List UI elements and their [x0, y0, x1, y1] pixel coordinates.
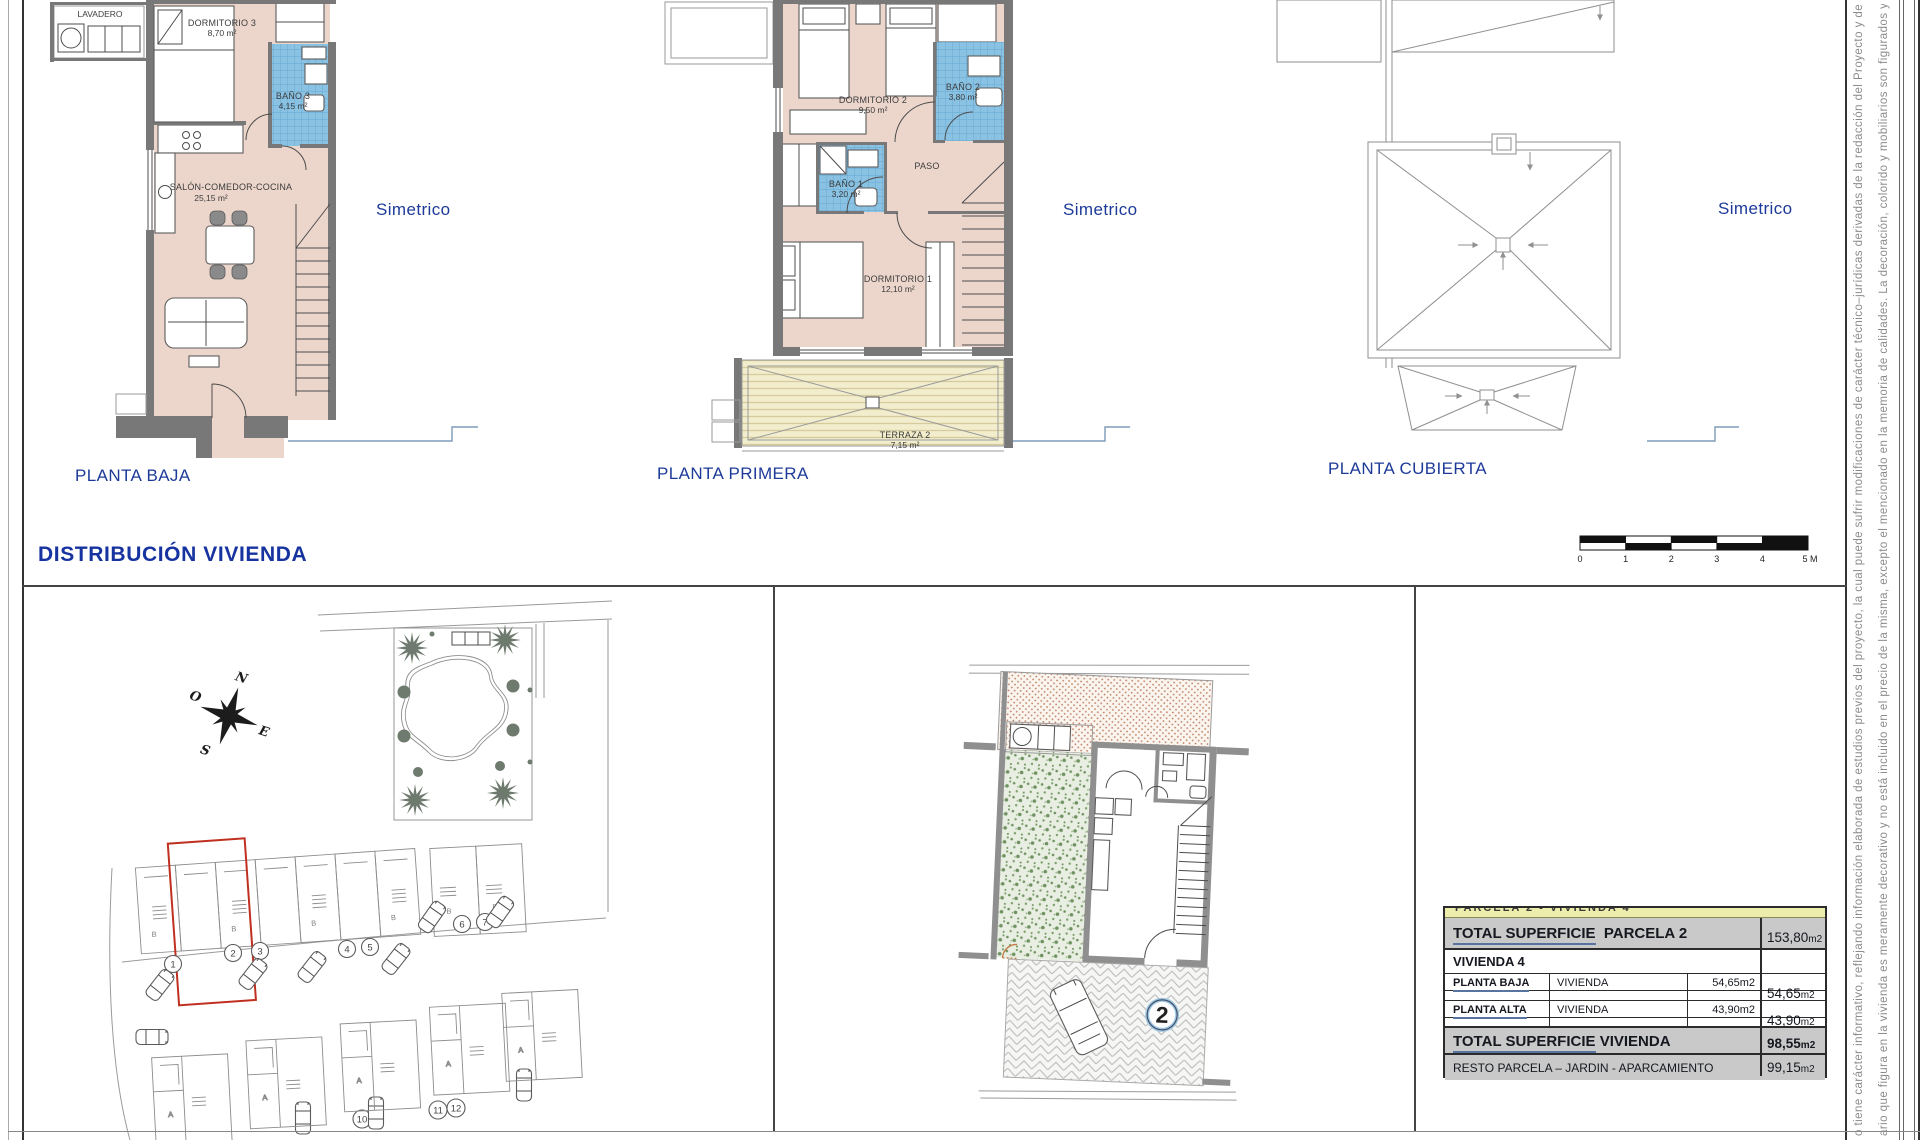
- label-total-parcela-u: TOTAL SUPERFICIE: [1453, 925, 1596, 945]
- parcel-number-badge: 2: [1155, 1002, 1169, 1029]
- room-label-bano3: BAÑO 3: [276, 91, 310, 101]
- compass-east: E: [256, 723, 272, 741]
- label-total-parcela: TOTAL SUPERFICIE PARCELA 2: [1453, 925, 1687, 942]
- panel-divider-2: [1414, 585, 1416, 1131]
- label-planta-alta-text: PLANTA ALTA: [1453, 1004, 1527, 1019]
- house-letter: B: [231, 924, 237, 933]
- label-vivienda4: VIVIENDA 4: [1453, 954, 1525, 969]
- cell-planta-alta-m2: 43,90m2: [1687, 1004, 1755, 1016]
- simetrico-label-3: Simetrico: [1718, 199, 1792, 219]
- table-clipped-title-text: PARCELA 2 - VIVIENDA 4: [1445, 908, 1825, 914]
- architectural-sheet: LAVADERO DORMITORIO 3 8,70 m² BAÑO 3 4,1…: [0, 0, 1920, 1140]
- house-letter: B: [311, 919, 317, 928]
- label-total-vivienda-u: TOTAL SUPERFICIE: [1453, 1033, 1596, 1053]
- label-planta-baja-text: PLANTA BAJA: [1453, 977, 1529, 992]
- disclaimer-divider-a: [1899, 0, 1900, 1140]
- room-area-terraza2: 7,15 m²: [891, 440, 920, 450]
- horizontal-divider: [22, 585, 1847, 587]
- label-resto-parcela: RESTO PARCELA – JARDIN - APARCAMIENTO: [1453, 1061, 1714, 1075]
- table-right-column-divider: [1760, 918, 1762, 1076]
- room-label-paso: PASO: [914, 161, 939, 171]
- room-area-bano2: 3,80 m²: [949, 92, 978, 102]
- room-label-dormitorio1: DORMITORIO 1: [864, 274, 932, 284]
- value-planta-alta: 43,90m2: [1767, 1013, 1815, 1028]
- plan-label-planta-baja: PLANTA BAJA: [75, 466, 191, 486]
- room-area-bano3: 4,15 m²: [279, 101, 308, 111]
- plot-number: 1: [170, 960, 175, 971]
- scale-tick-2: 2: [1669, 554, 1674, 564]
- label-planta-baja: PLANTA BAJA: [1453, 977, 1529, 989]
- cell-planta-baja-vivienda: VIVIENDA: [1557, 977, 1608, 989]
- room-area-salon: 25,15 m²: [194, 193, 228, 203]
- compass-rose: N E S O: [173, 658, 286, 775]
- room-label-lavadero: LAVADERO: [77, 9, 122, 19]
- sheet-bottom-border: [8, 1131, 1920, 1132]
- house-letter: A: [518, 1045, 523, 1054]
- disclaimer-divider-b: [1903, 0, 1904, 1140]
- value-total-parcela: 153,80m2: [1767, 930, 1822, 945]
- room-area-dormitorio2: 9,50 m²: [859, 105, 888, 115]
- label-total-parcela-rest: PARCELA 2: [1604, 925, 1687, 942]
- floor-plan-planta-primera: DORMITORIO 2 9,50 m² BAÑO 2 3,80 m² BAÑO…: [665, 0, 1130, 451]
- room-label-bano1: BAÑO 1: [829, 179, 863, 189]
- roof-plan-planta-cubierta: [1277, 0, 1739, 441]
- disclaimer-line-1: o tiene carácter informativo, reflejando…: [1853, 4, 1877, 1136]
- table-subdivider-1: [1549, 974, 1550, 1028]
- cell-planta-alta-vivienda: VIVIENDA: [1557, 1004, 1608, 1016]
- surface-summary-table: PARCELA 2 - VIVIENDA 4 TOTAL SUPERFICIE …: [1443, 906, 1827, 1078]
- table-clipped-header: PARCELA 2 - VIVIENDA 4: [1445, 908, 1825, 918]
- house-letter: B: [391, 913, 397, 922]
- house-letter: A: [168, 1110, 173, 1119]
- section-title: DISTRIBUCIÓN VIVIENDA: [38, 543, 307, 567]
- sheet-right-border: [1845, 0, 1847, 1140]
- plot-number: 10: [357, 1115, 368, 1126]
- room-area-dormitorio1: 12,10 m²: [881, 284, 915, 294]
- sheet-outer-left-line: [8, 0, 9, 1140]
- scale-tick-0: 0: [1577, 554, 1582, 564]
- house-letter: B: [151, 930, 157, 939]
- plan-label-planta-cubierta: PLANTA CUBIERTA: [1328, 459, 1487, 479]
- plot-number: 5: [367, 943, 372, 954]
- scale-bar: 0 1 2 3 4 5 M: [1577, 536, 1817, 564]
- value-planta-baja: 54,65m2: [1767, 986, 1815, 1001]
- plot-number: 11: [433, 1106, 443, 1117]
- plot-number: 3: [257, 947, 262, 958]
- scale-tick-4: 4: [1760, 554, 1765, 564]
- house-letter: A: [356, 1076, 361, 1085]
- floor-plan-planta-baja: LAVADERO DORMITORIO 3 8,70 m² BAÑO 3 4,1…: [50, 0, 478, 458]
- room-area-bano1: 3,20 m²: [832, 189, 861, 199]
- room-label-terraza2: TERRAZA 2: [880, 430, 931, 440]
- scale-tick-5: 5 M: [1802, 554, 1817, 564]
- scale-tick-3: 3: [1714, 554, 1719, 564]
- room-label-dormitorio3: DORMITORIO 3: [188, 18, 256, 28]
- compass-south: S: [198, 742, 212, 759]
- parcel-2-detail-plan: 2: [948, 653, 1255, 1109]
- sheet-edge-line-a: [1914, 0, 1915, 1140]
- simetrico-label-2: Simetrico: [1063, 200, 1137, 220]
- site-plan: B B B B B B 1 2 3 4 5 6 7 10 11 12: [110, 601, 612, 1140]
- panel-divider-1: [773, 585, 775, 1131]
- compass-west: O: [187, 688, 203, 706]
- scale-tick-1: 1: [1623, 554, 1628, 564]
- plot-number: 6: [459, 920, 464, 931]
- sheet-left-border: [22, 0, 24, 1140]
- value-resto-parcela: 99,15m2: [1767, 1060, 1815, 1075]
- house-letter: A: [446, 1059, 451, 1068]
- house-letter: A: [262, 1093, 267, 1102]
- label-total-vivienda: TOTAL SUPERFICIE VIVIENDA: [1453, 1033, 1671, 1050]
- plan-label-planta-primera: PLANTA PRIMERA: [657, 464, 809, 484]
- room-label-salon: SALÓN-COMEDOR-COCINA: [170, 182, 293, 192]
- plot-number: 2: [230, 949, 235, 960]
- cell-planta-baja-m2: 54,65m2: [1687, 977, 1755, 989]
- plot-number: 4: [344, 945, 349, 956]
- compass-north: N: [232, 669, 250, 688]
- label-planta-alta: PLANTA ALTA: [1453, 1004, 1527, 1016]
- simetrico-label-1: Simetrico: [376, 200, 450, 220]
- plot-number: 12: [451, 1104, 462, 1115]
- value-total-vivienda: 98,55m2: [1767, 1036, 1815, 1051]
- house-letter: B: [446, 907, 451, 916]
- label-total-vivienda-rest: VIVIENDA: [1600, 1033, 1671, 1050]
- room-label-bano2: BAÑO 2: [946, 82, 980, 92]
- room-label-dormitorio2: DORMITORIO 2: [839, 95, 907, 105]
- room-area-dormitorio3: 8,70 m²: [208, 28, 237, 38]
